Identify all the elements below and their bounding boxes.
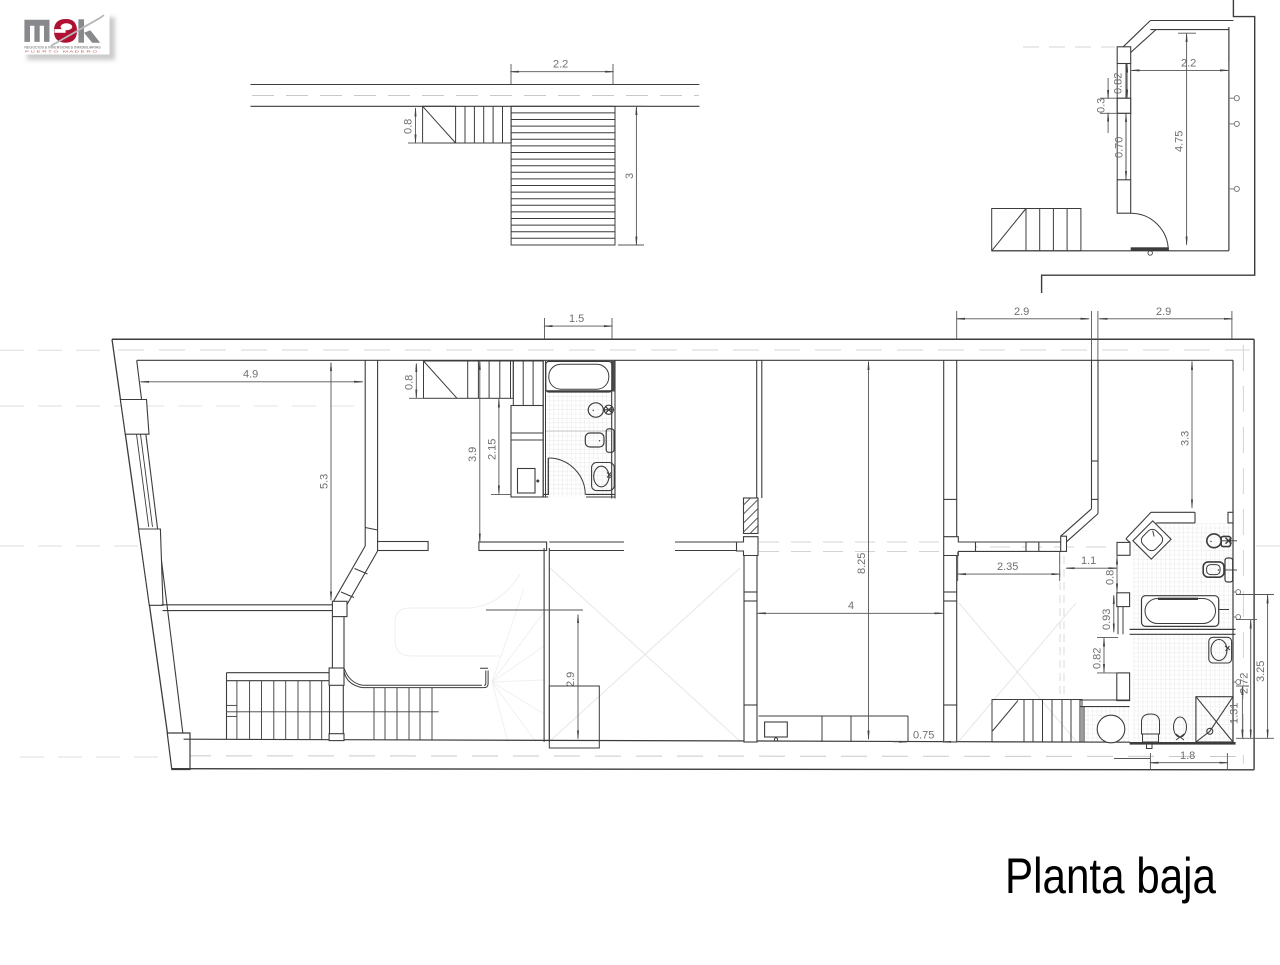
svg-text:2.9: 2.9 — [1156, 306, 1171, 318]
svg-text:2.2: 2.2 — [553, 59, 568, 71]
svg-text:0.3: 0.3 — [1096, 98, 1108, 113]
svg-text:P U E R T O M A D E R O: P U E R T O M A D E R O — [25, 50, 99, 54]
svg-text:Planta baja: Planta baja — [1005, 848, 1216, 904]
svg-text:0.8: 0.8 — [404, 375, 416, 390]
svg-text:2.9: 2.9 — [565, 672, 577, 687]
svg-text:2.35: 2.35 — [997, 561, 1018, 573]
svg-text:3.25: 3.25 — [1255, 661, 1267, 682]
svg-text:2.15: 2.15 — [487, 439, 499, 460]
svg-text:3.9: 3.9 — [467, 447, 479, 462]
svg-text:4.75: 4.75 — [1174, 131, 1186, 152]
svg-text:1.8: 1.8 — [1180, 750, 1195, 762]
svg-text:0.93: 0.93 — [1101, 609, 1113, 630]
svg-text:5.3: 5.3 — [319, 474, 331, 489]
svg-text:4.9: 4.9 — [243, 369, 258, 381]
svg-text:0.8: 0.8 — [1105, 570, 1117, 585]
svg-text:8.25: 8.25 — [856, 553, 868, 574]
svg-text:2.9: 2.9 — [1014, 306, 1029, 318]
svg-text:0.82: 0.82 — [1113, 73, 1125, 94]
svg-text:2.72: 2.72 — [1239, 673, 1251, 694]
svg-text:3: 3 — [624, 173, 636, 179]
svg-text:1.5: 1.5 — [569, 313, 584, 325]
svg-text:0.82: 0.82 — [1092, 648, 1104, 669]
svg-text:4: 4 — [848, 600, 854, 612]
svg-text:1.31: 1.31 — [1229, 703, 1241, 724]
svg-text:2.2: 2.2 — [1181, 58, 1196, 70]
svg-text:0.8: 0.8 — [403, 119, 415, 134]
svg-text:3.3: 3.3 — [1180, 431, 1192, 446]
svg-text:0.70: 0.70 — [1114, 137, 1126, 158]
svg-text:1.1: 1.1 — [1081, 555, 1096, 567]
svg-text:0.75: 0.75 — [913, 730, 934, 742]
